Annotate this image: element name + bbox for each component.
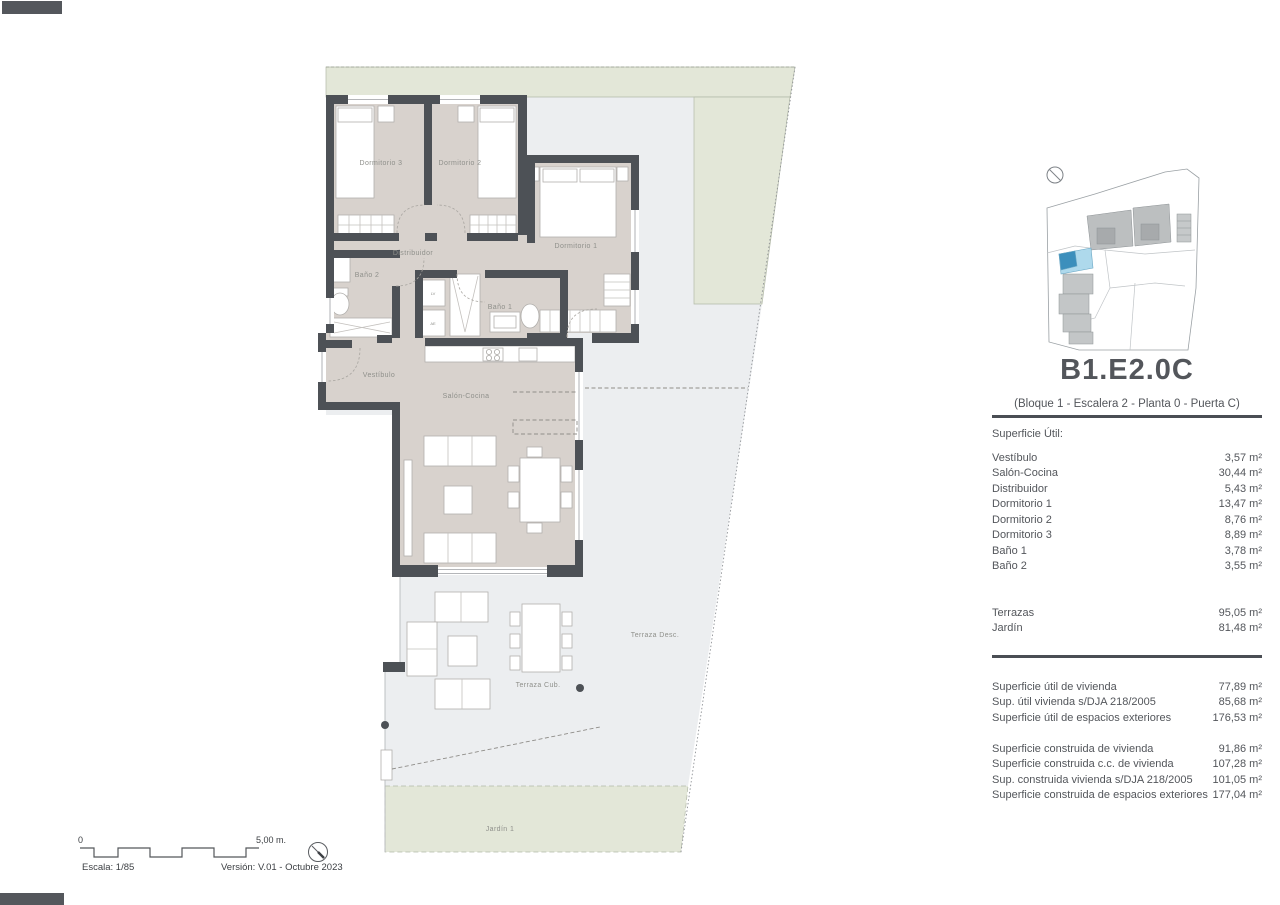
area-row: Sup. construida vivienda s/DJA 218/20051… bbox=[992, 772, 1262, 788]
room-label-terraza-cub: Terraza Cub. bbox=[516, 682, 561, 689]
area-value: 101,05 m² bbox=[1212, 774, 1262, 786]
area-label: Dormitorio 2 bbox=[992, 514, 1052, 526]
scale-text: Escala: 1/85 bbox=[82, 862, 134, 873]
room-label-salon-cocina: Salón-Cocina bbox=[443, 393, 490, 400]
north-compass-icon bbox=[1047, 167, 1063, 183]
area-label: Dormitorio 3 bbox=[992, 529, 1052, 541]
plan-sheet-page: Dormitorio 3 Dormitorio 2 Dormitorio 1 D… bbox=[0, 0, 1280, 905]
area-value: 107,28 m² bbox=[1212, 758, 1262, 770]
area-value: 176,53 m² bbox=[1212, 712, 1262, 724]
area-row: Superficie útil de vivienda77,89 m² bbox=[992, 679, 1262, 695]
area-value: 91,86 m² bbox=[1219, 743, 1262, 755]
bottom-left-corner-bar bbox=[0, 893, 64, 905]
area-label: Vestíbulo bbox=[992, 452, 1037, 464]
room-label-distribuidor: Distribuidor bbox=[393, 250, 433, 257]
divider-rule-bottom bbox=[992, 655, 1262, 658]
area-label: Superficie construida c.c. de vivienda bbox=[992, 758, 1174, 770]
area-row: Baño 23,55 m² bbox=[992, 559, 1262, 575]
area-row: Superficie construida de vivienda91,86 m… bbox=[992, 741, 1262, 757]
version-text: Versión: V.01 - Octubre 2023 bbox=[221, 862, 343, 873]
area-row: Superficie construida de espacios exteri… bbox=[992, 788, 1262, 804]
area-label: Salón-Cocina bbox=[992, 467, 1058, 479]
area-label: Dormitorio 1 bbox=[992, 498, 1052, 510]
area-label: Terrazas bbox=[992, 607, 1034, 619]
area-label: Superficie construida de vivienda bbox=[992, 743, 1153, 755]
utility-closet-label-2: AE bbox=[430, 321, 436, 326]
scale-bar: 0 5,00 m. bbox=[60, 830, 340, 882]
area-row: Superficie útil de espacios exteriores17… bbox=[992, 710, 1262, 726]
area-value: 13,47 m² bbox=[1219, 498, 1262, 510]
area-row: Vestíbulo3,57 m² bbox=[992, 450, 1262, 466]
area-label: Superficie útil de espacios exteriores bbox=[992, 712, 1171, 724]
area-value: 177,04 m² bbox=[1212, 789, 1262, 801]
area-label: Baño 2 bbox=[992, 560, 1027, 572]
compass-icon bbox=[309, 843, 328, 862]
room-label-dormitorio3: Dormitorio 3 bbox=[360, 160, 403, 167]
summary-built-table: Superficie construida de vivienda91,86 m… bbox=[992, 741, 1262, 803]
room-label-jardin: Jardín 1 bbox=[486, 826, 515, 833]
room-label-bano2: Baño 2 bbox=[355, 272, 380, 279]
area-row: Baño 13,78 m² bbox=[992, 543, 1262, 559]
garden-region bbox=[385, 786, 688, 852]
green-block-right bbox=[694, 97, 790, 304]
room-label-terraza-desc: Terraza Desc. bbox=[631, 632, 679, 639]
exterior-areas-table: Terrazas95,05 m² Jardín81,48 m² bbox=[992, 605, 1262, 636]
area-value: 77,89 m² bbox=[1219, 681, 1262, 693]
area-row: Dormitorio 113,47 m² bbox=[992, 497, 1262, 513]
floor-plan-drawing: Dormitorio 3 Dormitorio 2 Dormitorio 1 D… bbox=[312, 58, 808, 858]
area-label: Sup. útil vivienda s/DJA 218/2005 bbox=[992, 696, 1156, 708]
utility-closet-label-1: LV bbox=[431, 291, 436, 296]
scale-start-label: 0 bbox=[78, 835, 83, 845]
area-value: 95,05 m² bbox=[1219, 607, 1262, 619]
scale-bar-meander bbox=[80, 848, 259, 857]
room-label-dormitorio1: Dormitorio 1 bbox=[555, 243, 598, 250]
room-label-vestibulo: Vestíbulo bbox=[363, 372, 395, 379]
area-label: Superficie útil de vivienda bbox=[992, 681, 1117, 693]
room-label-dormitorio2: Dormitorio 2 bbox=[439, 160, 482, 167]
area-value: 5,43 m² bbox=[1225, 483, 1262, 495]
area-row: Jardín81,48 m² bbox=[992, 621, 1262, 637]
divider-rule-top bbox=[992, 415, 1262, 418]
summary-util-table: Superficie útil de vivienda77,89 m² Sup.… bbox=[992, 679, 1262, 726]
plan-code-subtitle: (Bloque 1 - Escalera 2 - Planta 0 - Puer… bbox=[992, 398, 1262, 410]
area-row: Dormitorio 28,76 m² bbox=[992, 512, 1262, 528]
area-label: Superficie construida de espacios exteri… bbox=[992, 789, 1208, 801]
area-row: Salón-Cocina30,44 m² bbox=[992, 466, 1262, 482]
scale-end-label: 5,00 m. bbox=[256, 835, 286, 845]
area-value: 85,68 m² bbox=[1219, 696, 1262, 708]
superficie-util-table: Vestíbulo3,57 m² Salón-Cocina30,44 m² Di… bbox=[992, 450, 1262, 574]
top-left-corner-bar bbox=[2, 1, 62, 14]
area-row: Sup. útil vivienda s/DJA 218/200585,68 m… bbox=[992, 695, 1262, 711]
superficie-util-heading: Superficie Útil: bbox=[992, 428, 1063, 440]
area-value: 3,78 m² bbox=[1225, 545, 1262, 557]
area-label: Sup. construida vivienda s/DJA 218/2005 bbox=[992, 774, 1193, 786]
green-strip-top bbox=[326, 67, 795, 97]
area-value: 81,48 m² bbox=[1219, 622, 1262, 634]
area-row: Dormitorio 38,89 m² bbox=[992, 528, 1262, 544]
area-value: 3,57 m² bbox=[1225, 452, 1262, 464]
area-label: Jardín bbox=[992, 622, 1023, 634]
room-label-bano1: Baño 1 bbox=[488, 304, 513, 311]
drain-dot-terrace bbox=[576, 684, 584, 692]
area-value: 8,76 m² bbox=[1225, 514, 1262, 526]
area-value: 30,44 m² bbox=[1219, 467, 1262, 479]
area-row: Superficie construida c.c. de vivienda10… bbox=[992, 757, 1262, 773]
area-value: 3,55 m² bbox=[1225, 560, 1262, 572]
area-row: Distribuidor5,43 m² bbox=[992, 481, 1262, 497]
area-label: Baño 1 bbox=[992, 545, 1027, 557]
info-panel: B1.E2.0C (Bloque 1 - Escalera 2 - Planta… bbox=[992, 0, 1262, 905]
site-locator-map bbox=[1035, 158, 1205, 353]
drain-dot-edge bbox=[381, 721, 389, 729]
area-row: Terrazas95,05 m² bbox=[992, 605, 1262, 621]
area-label: Distribuidor bbox=[992, 483, 1048, 495]
plan-code-title: B1.E2.0C bbox=[992, 354, 1262, 387]
area-value: 8,89 m² bbox=[1225, 529, 1262, 541]
